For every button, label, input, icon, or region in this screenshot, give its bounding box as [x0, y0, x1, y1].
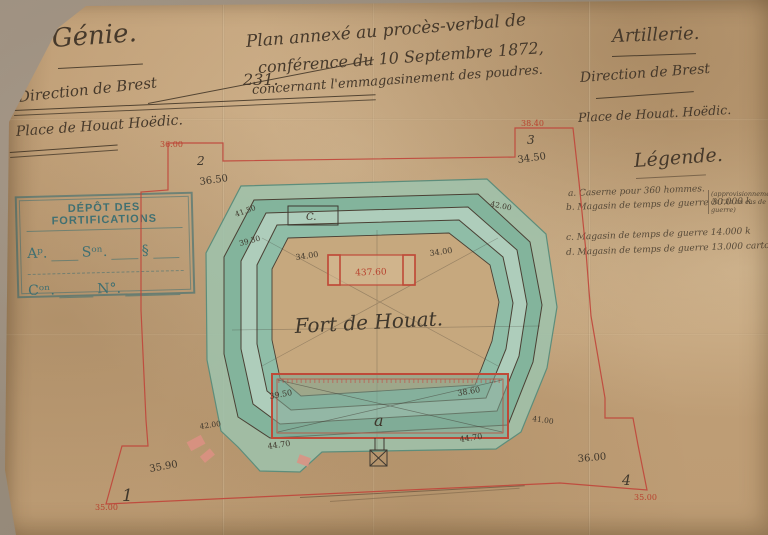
red-elevation-br: 35.00: [634, 493, 657, 502]
building-c-label: C.: [306, 212, 316, 223]
elevation-bl: 35.90: [149, 459, 179, 475]
magazine-elevation: 437.60: [355, 267, 387, 278]
red-patch: [200, 448, 215, 462]
red-elevation-tl: 36.00: [160, 140, 183, 149]
red-elevation-tr: 38.40: [521, 119, 544, 128]
red-patch: [187, 435, 206, 451]
elevation-br: 36.00: [577, 452, 606, 465]
rampart-elevation-lower-right: 41.00: [532, 414, 555, 426]
building-a-label: a: [374, 411, 384, 430]
photograph-background: Génie. Direction de Brest 231. Place de …: [0, 0, 768, 535]
corner-marker-1: 1: [122, 486, 133, 506]
document-sheet: Génie. Direction de Brest 231. Place de …: [0, 0, 768, 535]
elevation-tl: 36.50: [199, 173, 229, 188]
corner-marker-3: 3: [527, 133, 535, 147]
corner-marker-4: 4: [621, 473, 631, 489]
rampart-elevation-lower-left: 42.00: [199, 419, 222, 431]
red-elevation-bl: 35.00: [95, 503, 118, 512]
elevation-tr: 34.50: [517, 151, 547, 166]
fort-plan-drawing: 2 36.00 36.50 3 38.40 34.50 1 35.00 35.9…: [0, 0, 768, 535]
corner-marker-2: 2: [196, 154, 205, 168]
